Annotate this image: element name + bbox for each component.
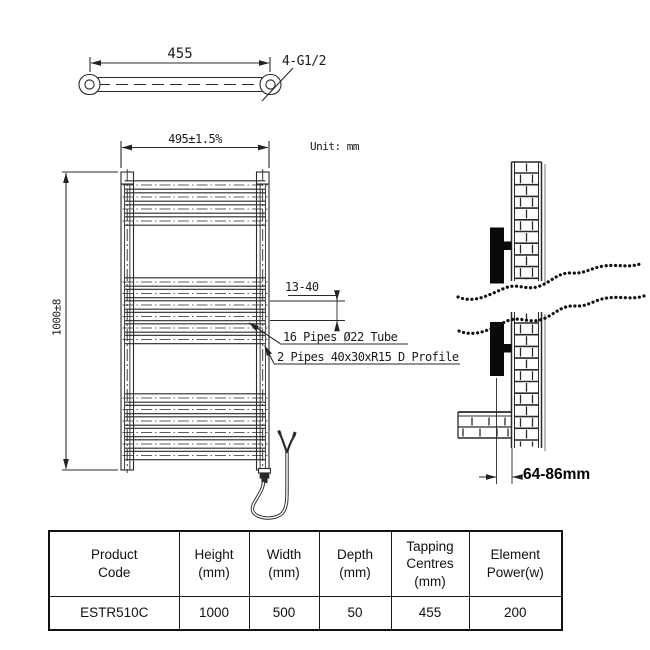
floor-slab (458, 412, 512, 438)
radiator-side-profile-lower (490, 322, 504, 376)
radiator-side-profile-upper (490, 228, 504, 284)
col-header-element-power: Element Power(w) (469, 531, 562, 597)
tapping-centres-value: 455 (391, 597, 469, 631)
col-header-height: Height (mm) (179, 531, 249, 597)
height-value: 1000 (179, 597, 249, 631)
col-header-depth: Depth (mm) (319, 531, 391, 597)
break-line-lower (459, 296, 644, 333)
pipes-count-label: 16 Pipes Ø22 Tube (283, 330, 397, 344)
side-view (458, 162, 644, 484)
rung-pipes (123, 181, 268, 460)
break-line-upper (458, 264, 640, 299)
tube-profile-label: 2 Pipes 40x30xR15 D Profile (277, 350, 459, 364)
rung-gap-dim-text: 13-40 (285, 280, 319, 294)
tapping-centres-dim-text: 455 (148, 46, 212, 62)
top-view (79, 57, 293, 101)
col-header-width: Width (mm) (249, 531, 319, 597)
depth-value: 50 (319, 597, 391, 631)
spec-table-header-row: Product Code Height (mm) Width (mm) Dept… (49, 531, 562, 597)
unit-note: Unit: mm (310, 140, 359, 153)
wall-bracket-upper (504, 242, 512, 251)
brick-wall (512, 162, 546, 451)
col-header-tapping-centres: Tapping Centres (mm) (391, 531, 469, 597)
element-power-value: 200 (469, 597, 562, 631)
product-code-value: ESTR510C (49, 597, 179, 631)
left-mount-hole (85, 80, 94, 89)
col-header-product-code: Product Code (49, 531, 179, 597)
spec-table-data-row: ESTR510C 1000 500 50 455 200 (49, 597, 562, 631)
right-mount-hole (266, 80, 275, 89)
towel-rail-technical-drawing: 455 4-G1/2 495±1.5% Unit: mm 1000±8 13-4… (0, 0, 650, 650)
fitting-size-label: 4-G1/2 (282, 54, 326, 69)
wall-bracket-lower (504, 344, 512, 353)
overall-width-dim-text: 495±1.5% (155, 132, 235, 146)
overall-height-dim-text: 1000±8 (51, 285, 64, 351)
front-view (62, 141, 460, 518)
wall-distance-dim-text: 64-86mm (523, 466, 590, 484)
width-value: 500 (249, 597, 319, 631)
spec-table: Product Code Height (mm) Width (mm) Dept… (48, 530, 563, 631)
